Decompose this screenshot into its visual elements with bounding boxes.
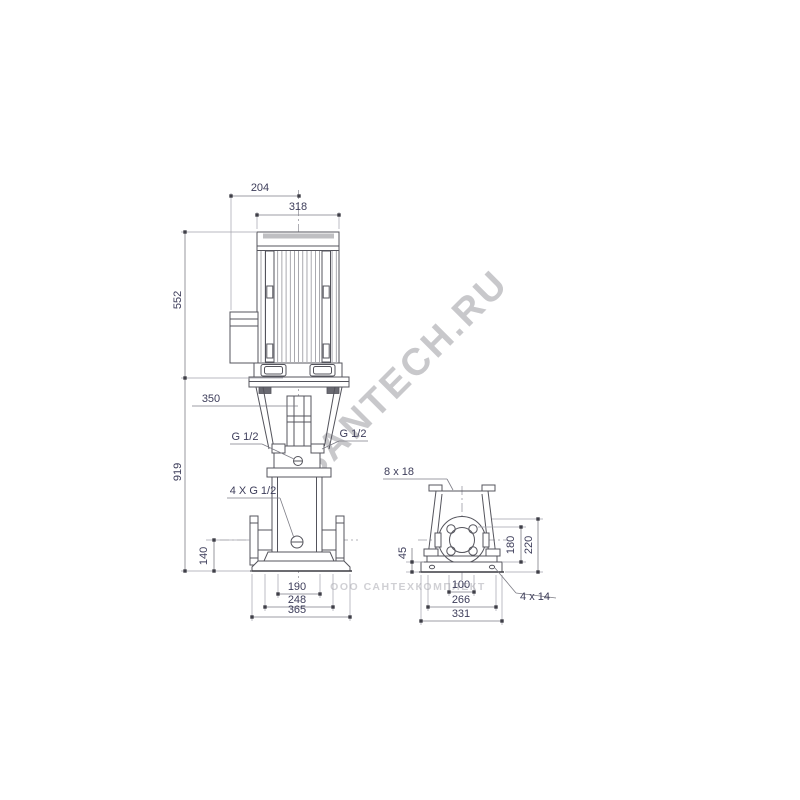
side-view: 8 x 18 45 180 220 100 [383, 466, 556, 625]
base-plate [252, 561, 350, 571]
stool-bolt-left [259, 387, 271, 394]
drain-plug [291, 536, 303, 548]
dim-holes-label: 4 x 14 [520, 591, 550, 603]
dim-45: 45 [397, 547, 424, 574]
dim-552-label: 552 [172, 291, 184, 309]
motor-flange [254, 363, 342, 377]
dim-190-label: 190 [288, 581, 306, 593]
dim-45-label: 45 [397, 547, 409, 559]
dim-140-label: 140 [198, 547, 210, 565]
dim-331-label: 331 [452, 608, 470, 620]
dim-204-label: 204 [251, 182, 269, 194]
dim-140: 140 [198, 538, 250, 572]
dim-919-label: 919 [172, 463, 184, 481]
drain-ports-label: 4 X G 1/2 [230, 485, 276, 497]
pump-dimensional-drawing: SANTECH.RU ООО САНТЕХКОМПЛЕКТ [0, 0, 800, 800]
dim-350-label: 350 [202, 393, 220, 405]
port-right-label: G 1/2 [340, 428, 367, 440]
dim-180-label: 180 [505, 536, 517, 554]
stool-bolt-right [327, 387, 339, 394]
motor [230, 232, 342, 377]
vent-port-right [311, 444, 324, 453]
terminal-box [230, 312, 258, 363]
dim-100-label: 100 [452, 579, 470, 591]
coupling [287, 396, 311, 446]
dim-318-label: 318 [289, 201, 307, 213]
label-holes: 4 x 14 [495, 568, 556, 603]
dim-365-label: 365 [288, 604, 306, 616]
dim-350: 350 [192, 393, 298, 406]
dim-slots-label: 8 x 18 [384, 466, 414, 478]
dim-220-label: 220 [523, 536, 535, 554]
technical-drawing-page: SANTECH.RU ООО САНТЕХКОМПЛЕКТ [0, 0, 800, 800]
port-left-label: G 1/2 [232, 431, 259, 443]
front-view: 204 318 552 919 350 140 [172, 182, 368, 621]
dim-318: 318 [255, 201, 340, 229]
dim-266-label: 266 [452, 594, 470, 606]
